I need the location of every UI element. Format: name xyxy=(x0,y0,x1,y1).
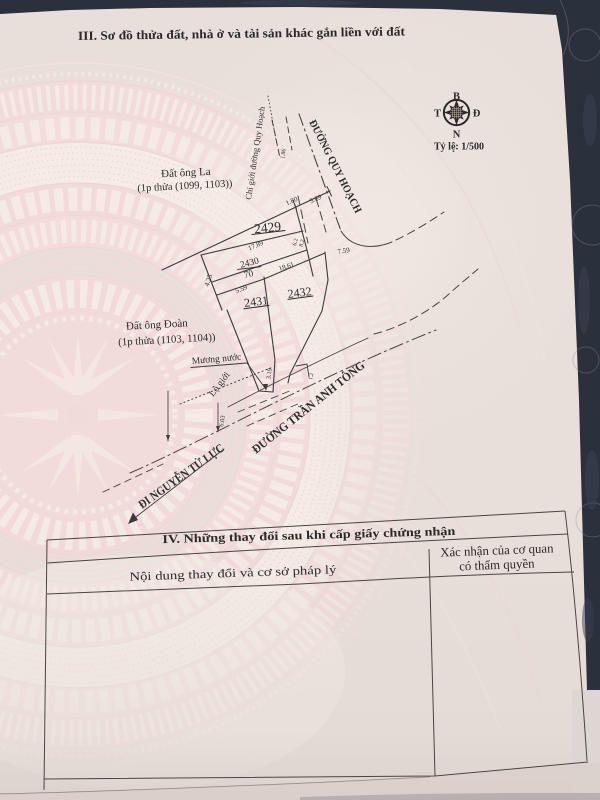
svg-text:T: T xyxy=(434,109,441,120)
svg-text:Đ: Đ xyxy=(473,109,481,120)
svg-text:Tỷ lệ: 1/500: Tỷ lệ: 1/500 xyxy=(434,142,484,153)
svg-text:2432: 2432 xyxy=(287,284,313,301)
svg-text:có thẩm quyền: có thẩm quyền xyxy=(459,557,535,574)
svg-text:1.2: 1.2 xyxy=(308,372,315,380)
svg-text:N: N xyxy=(453,130,461,141)
